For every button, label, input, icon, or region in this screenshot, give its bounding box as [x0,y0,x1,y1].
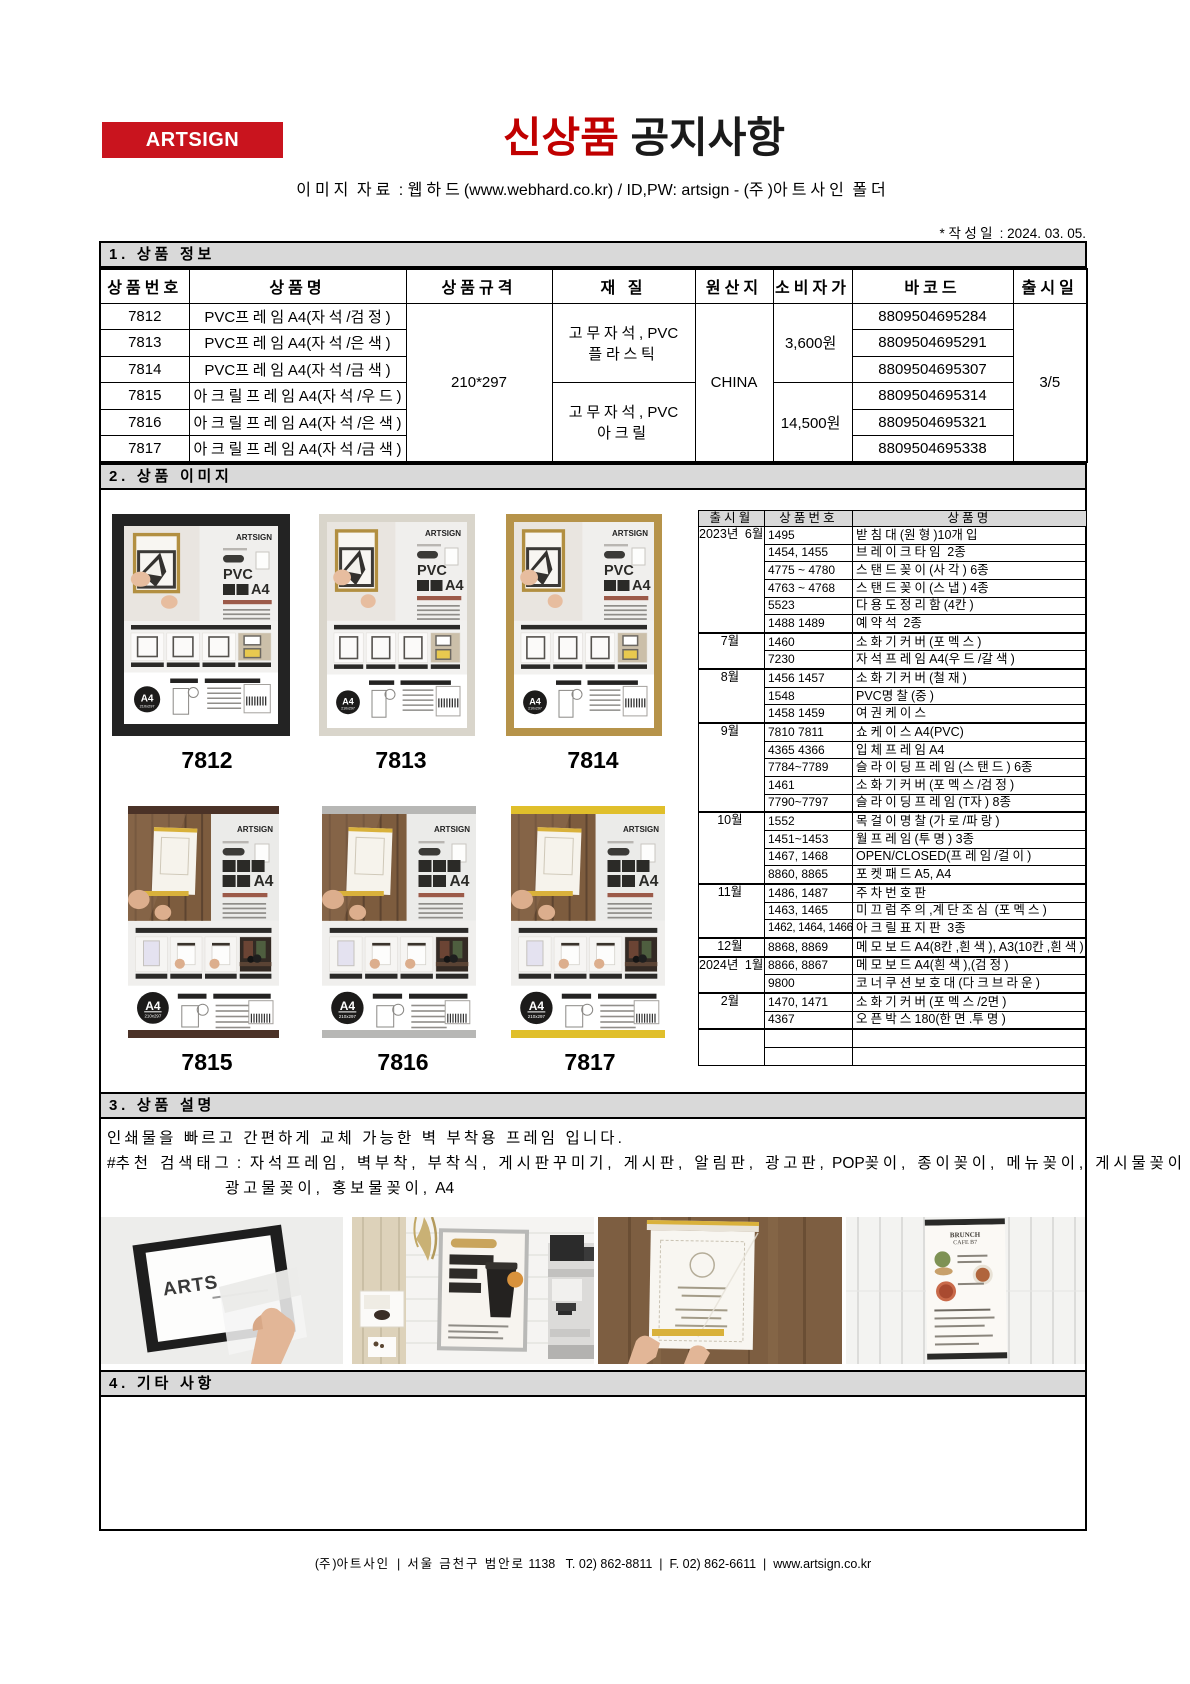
svg-text:210x297: 210x297 [341,707,355,711]
svg-text:A4: A4 [254,873,274,890]
svg-text:A4: A4 [342,696,354,706]
svg-text:A4: A4 [340,999,356,1013]
svg-text:210x297: 210x297 [339,1014,357,1019]
svg-text:CAFE B7: CAFE B7 [953,1240,977,1246]
svg-text:210x297: 210x297 [144,1014,161,1019]
svg-text:A4: A4 [445,578,464,594]
svg-text:PVC: PVC [223,567,253,583]
svg-text:A4: A4 [529,696,541,706]
svg-text:A4: A4 [639,873,659,890]
svg-text:A4: A4 [450,873,470,890]
svg-text:A4: A4 [529,999,545,1013]
svg-text:BRUNCH: BRUNCH [950,1231,981,1240]
svg-text:PVC: PVC [417,563,447,579]
svg-text:A4: A4 [632,578,651,594]
svg-text:ARTSIGN: ARTSIGN [612,529,648,538]
svg-text:ARTSIGN: ARTSIGN [623,825,659,834]
svg-text:A4: A4 [251,582,270,598]
svg-text:ARTSIGN: ARTSIGN [425,529,461,538]
svg-text:210x297: 210x297 [140,703,155,708]
svg-text:210x297: 210x297 [528,1014,546,1019]
svg-text:A4: A4 [145,999,161,1013]
svg-text:ARTSIGN: ARTSIGN [434,825,470,834]
svg-text:PVC: PVC [604,563,634,579]
svg-text:210x297: 210x297 [528,707,542,711]
svg-text:ARTSIGN: ARTSIGN [236,533,272,542]
svg-text:ARTSIGN: ARTSIGN [237,825,273,834]
